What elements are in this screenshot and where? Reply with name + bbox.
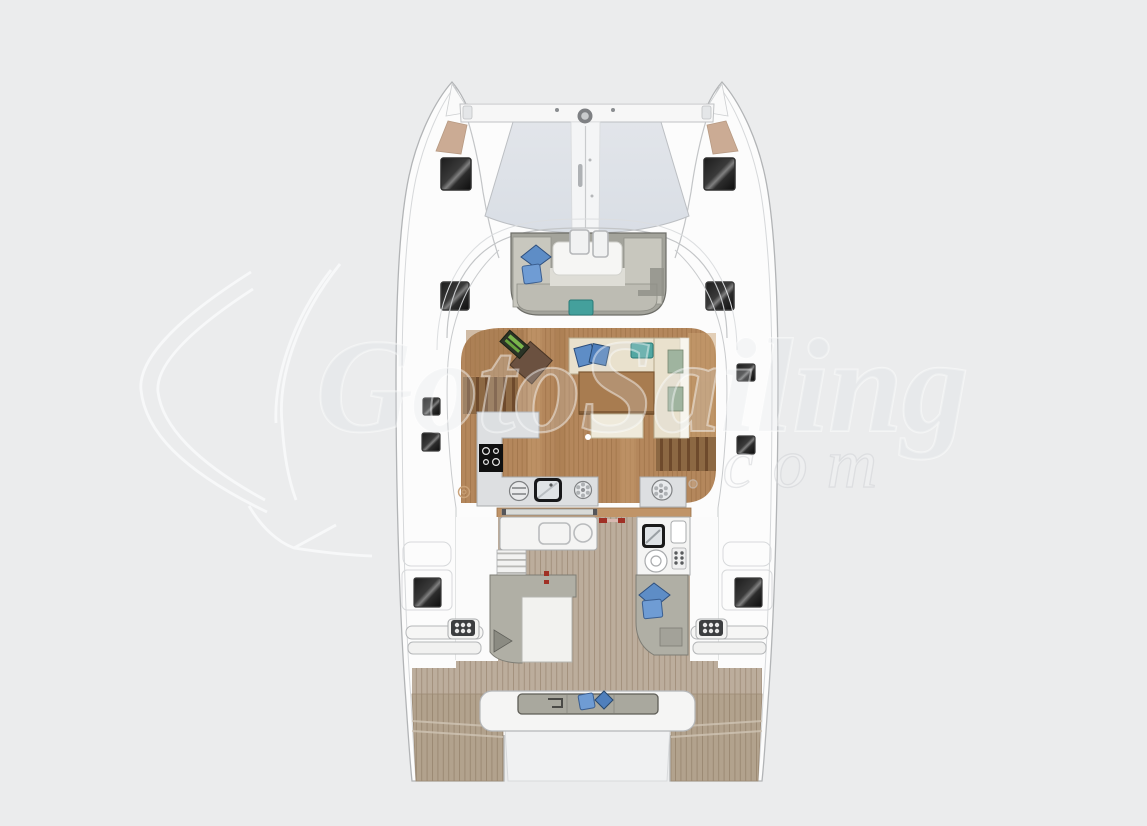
svg-text:.com: .com bbox=[686, 426, 896, 503]
